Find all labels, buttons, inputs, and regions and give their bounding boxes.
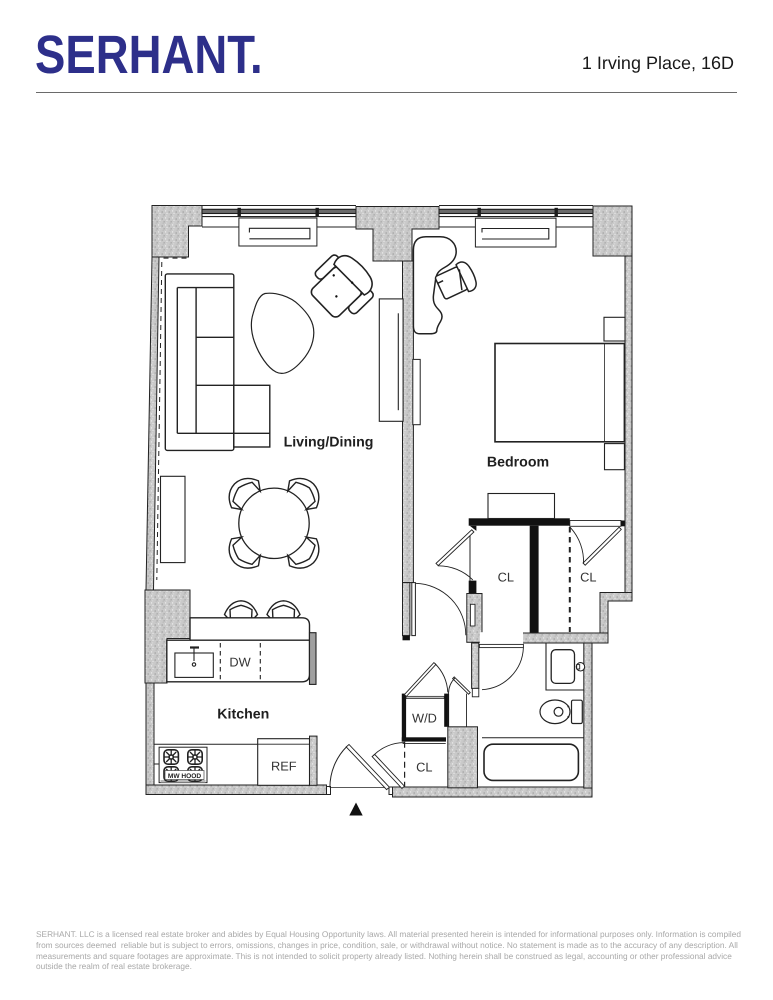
svg-text:Kitchen: Kitchen <box>217 707 269 723</box>
svg-text:MW HOOD: MW HOOD <box>168 773 202 780</box>
svg-text:Bedroom: Bedroom <box>487 455 549 471</box>
svg-text:CL: CL <box>416 760 432 775</box>
svg-text:Living/Dining: Living/Dining <box>284 435 374 451</box>
svg-text:CL: CL <box>498 570 514 585</box>
svg-text:REF: REF <box>271 759 297 774</box>
svg-text:CL: CL <box>580 570 596 585</box>
svg-text:DW: DW <box>229 655 251 670</box>
svg-text:W/D: W/D <box>412 711 437 726</box>
